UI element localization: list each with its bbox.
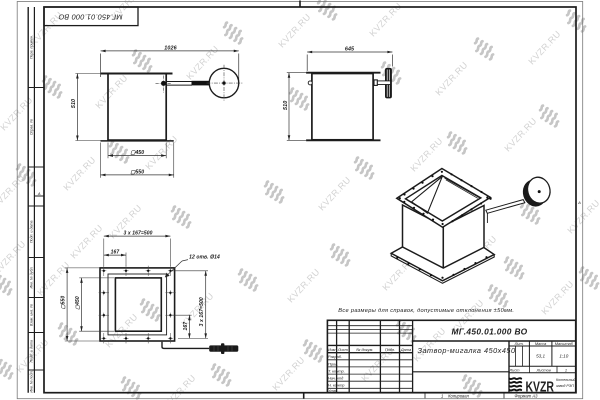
svg-text:1: 1 — [565, 368, 567, 373]
svg-text:Лит.: Лит. — [514, 341, 524, 346]
svg-text:12 отв. Ø14: 12 отв. Ø14 — [189, 255, 220, 261]
svg-text:А: А — [37, 191, 41, 196]
svg-text:МГ.450.01.000 ВО: МГ.450.01.000 ВО — [451, 326, 527, 336]
svg-text:Подп. и дата: Подп. и дата — [29, 221, 33, 244]
svg-text:Подп. и дата: Подп. и дата — [29, 340, 33, 363]
svg-text:53,1: 53,1 — [536, 354, 545, 359]
svg-text:МГ.450.01.000 ВО: МГ.450.01.000 ВО — [58, 12, 122, 21]
svg-text:3 х 167=500: 3 х 167=500 — [199, 297, 205, 326]
svg-text:Все размеры для справок, допус: Все размеры для справок, допустимые откл… — [338, 308, 514, 314]
svg-text:Инв. № подл.: Инв. № подл. — [29, 370, 33, 392]
svg-text:№ докум.: № докум. — [356, 347, 373, 352]
svg-text:завод РЭП: завод РЭП — [555, 384, 574, 388]
svg-text:Листов: Листов — [536, 368, 551, 373]
svg-text:510: 510 — [283, 101, 289, 110]
svg-text:▢550: ▢550 — [130, 169, 144, 175]
svg-text:Затвор-мигалка 450х450: Затвор-мигалка 450х450 — [418, 346, 516, 355]
svg-text:Формат А3: Формат А3 — [515, 393, 539, 398]
svg-text:▢450: ▢450 — [75, 296, 81, 310]
svg-text:Дата: Дата — [400, 347, 412, 352]
svg-text:Пров.: Пров. — [328, 361, 338, 366]
svg-text:Утв.: Утв. — [328, 388, 337, 393]
svg-text:Взам. инв. №: Взам. инв. № — [29, 304, 33, 326]
svg-text:▢450: ▢450 — [130, 150, 144, 156]
svg-text:Масса: Масса — [535, 341, 547, 346]
svg-text:1:10: 1:10 — [559, 354, 568, 359]
svg-text:Справ. №: Справ. № — [29, 119, 33, 135]
svg-text:Перв. примен.: Перв. примен. — [29, 35, 33, 59]
svg-text:Котельный: Котельный — [556, 378, 576, 382]
svg-text:645: 645 — [345, 46, 355, 52]
svg-text:Н. контр: Н. контр — [328, 383, 345, 388]
svg-text:Лист: Лист — [508, 368, 520, 373]
svg-text:Разраб.: Разраб. — [328, 354, 342, 359]
svg-text:1026: 1026 — [164, 45, 177, 51]
svg-text:Копировал: Копировал — [448, 393, 469, 398]
svg-text:▢550: ▢550 — [61, 296, 67, 310]
svg-text:А: А — [577, 200, 581, 205]
svg-text:Инв. № дубл.: Инв. № дубл. — [29, 266, 33, 288]
svg-text:3 х 167=500: 3 х 167=500 — [123, 230, 152, 236]
svg-text:Подп.: Подп. — [385, 347, 395, 352]
svg-text:Лист: Лист — [337, 347, 349, 352]
svg-text:Изм: Изм — [328, 347, 336, 352]
svg-text:510: 510 — [71, 99, 77, 108]
svg-text:Масштаб: Масштаб — [555, 341, 574, 346]
svg-text:167: 167 — [111, 249, 120, 255]
svg-text:1: 1 — [441, 393, 443, 398]
svg-text:Т. контр.: Т. контр. — [328, 369, 345, 374]
svg-text:167: 167 — [183, 322, 189, 331]
svg-text:Нач.отд: Нач.отд — [328, 376, 344, 381]
